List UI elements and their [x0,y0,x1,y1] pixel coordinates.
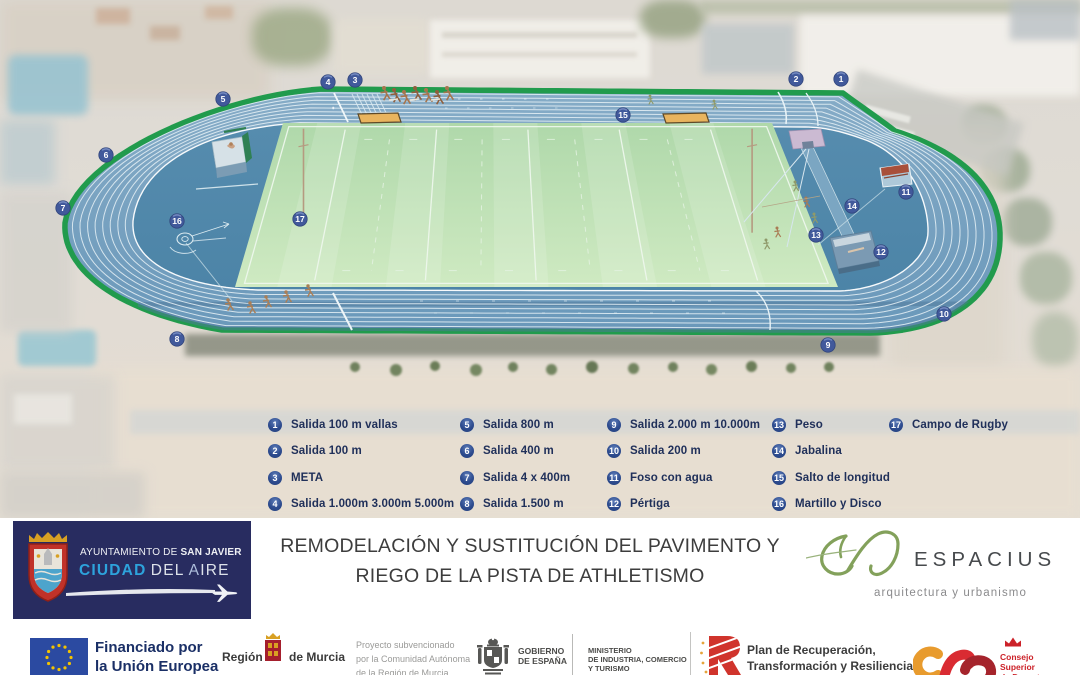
svg-text:9: 9 [826,340,831,350]
svg-text:13: 13 [811,230,821,240]
svg-text:11: 11 [901,187,910,197]
svg-text:10: 10 [939,309,949,319]
svg-text:7: 7 [61,203,66,213]
svg-text:16: 16 [172,216,182,226]
svg-text:17: 17 [295,214,305,224]
svg-text:5: 5 [221,94,226,104]
svg-text:3: 3 [353,75,358,85]
svg-text:8: 8 [175,334,180,344]
svg-text:1: 1 [839,74,844,84]
svg-text:6: 6 [104,150,109,160]
svg-text:15: 15 [618,110,628,120]
svg-text:12: 12 [876,247,886,257]
svg-text:14: 14 [847,201,857,211]
svg-text:4: 4 [326,77,331,87]
svg-text:2: 2 [794,74,799,84]
